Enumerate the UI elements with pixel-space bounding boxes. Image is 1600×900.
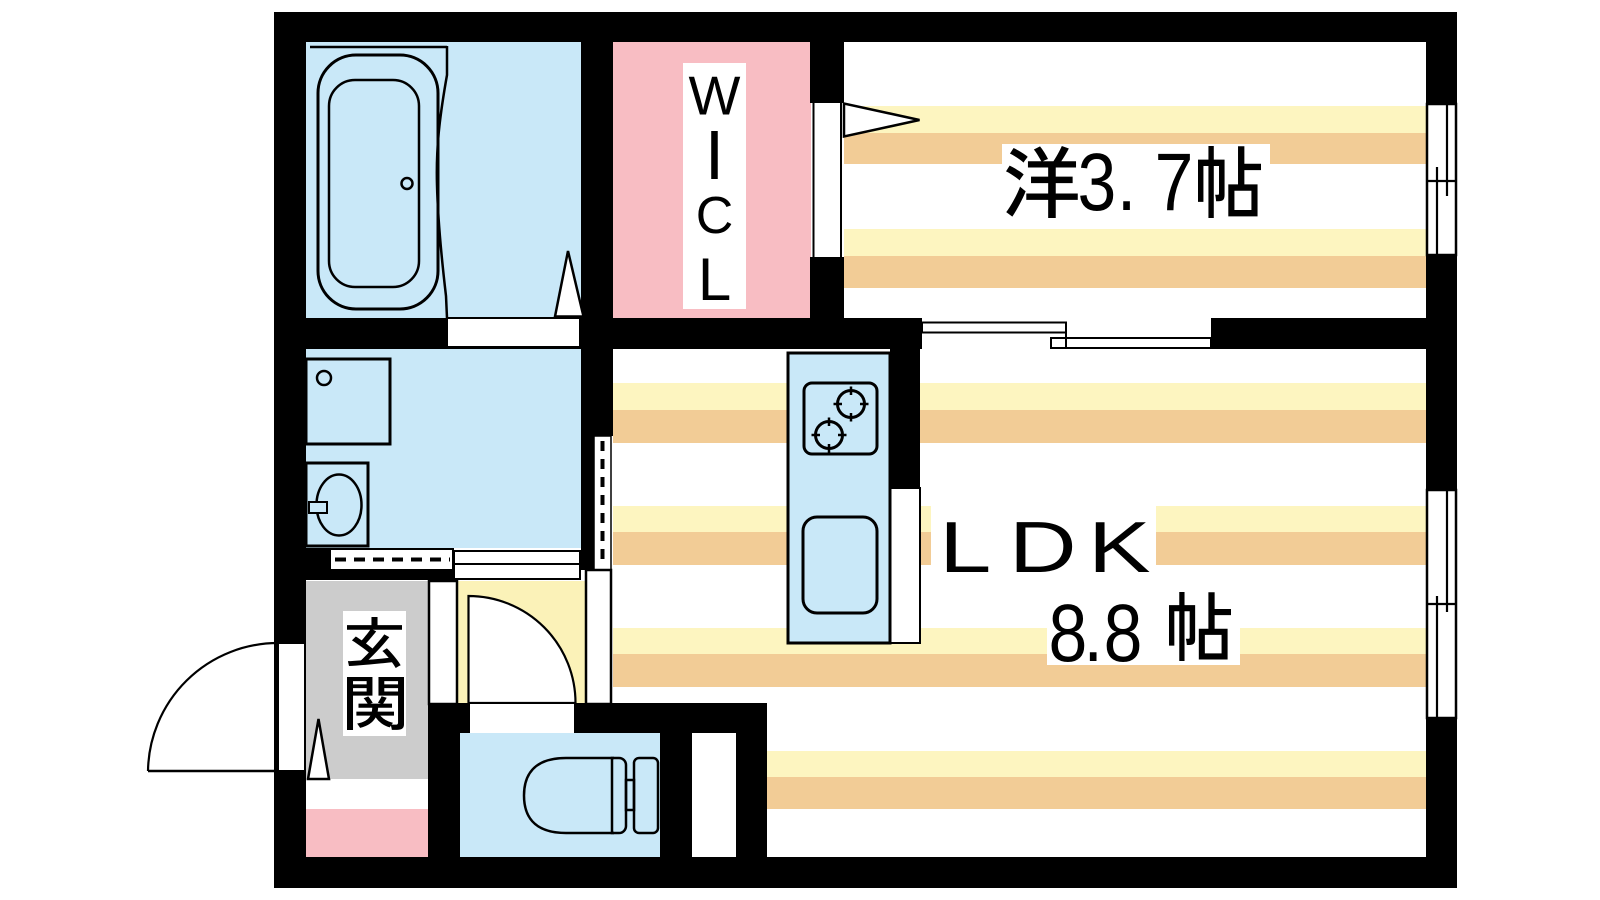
svg-text:L: L bbox=[698, 246, 731, 313]
svg-text:7: 7 bbox=[1155, 137, 1194, 229]
svg-text:L: L bbox=[939, 506, 991, 587]
svg-text:I: I bbox=[705, 116, 724, 194]
svg-text:.: . bbox=[1083, 588, 1102, 680]
svg-text:.: . bbox=[1117, 137, 1136, 229]
svg-text:8: 8 bbox=[1104, 588, 1143, 680]
svg-text:8: 8 bbox=[1049, 588, 1088, 680]
svg-text:K: K bbox=[1088, 506, 1150, 587]
svg-text:3: 3 bbox=[1077, 137, 1116, 229]
svg-text:C: C bbox=[696, 187, 734, 245]
svg-text:D: D bbox=[1009, 506, 1077, 587]
